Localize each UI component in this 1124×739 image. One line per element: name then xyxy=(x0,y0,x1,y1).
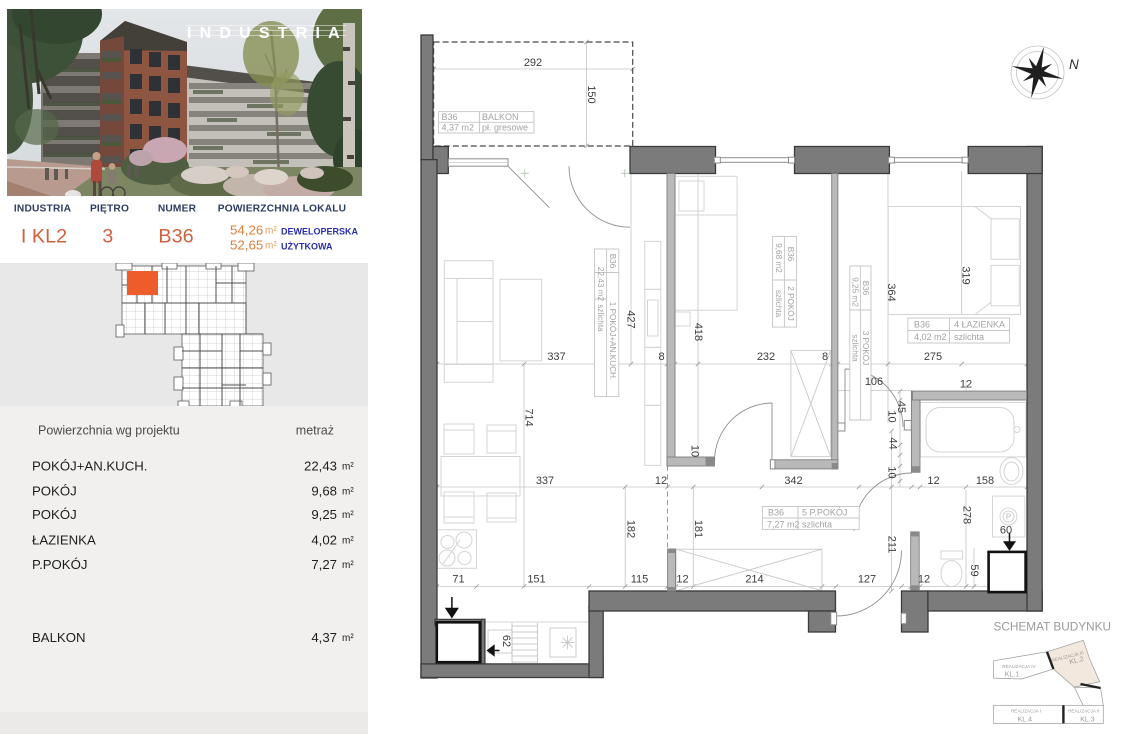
svg-text:4,02 m2: 4,02 m2 xyxy=(914,332,947,342)
svg-text:8: 8 xyxy=(658,351,664,363)
svg-text:12: 12 xyxy=(655,475,667,487)
svg-text:12: 12 xyxy=(918,574,930,586)
svg-text:115: 115 xyxy=(631,574,649,586)
svg-text:337: 337 xyxy=(536,475,554,487)
svg-text:7,27 m2: 7,27 m2 xyxy=(767,520,800,530)
svg-text:pł. gresowe: pł. gresowe xyxy=(482,123,528,133)
svg-text:B36: B36 xyxy=(768,508,784,518)
svg-text:211: 211 xyxy=(886,536,898,554)
svg-text:KL.3: KL.3 xyxy=(1080,717,1095,724)
svg-text:44: 44 xyxy=(887,437,899,449)
svg-text:62: 62 xyxy=(500,635,512,647)
svg-text:KL.4: KL.4 xyxy=(1018,717,1033,724)
svg-text:szlichta: szlichta xyxy=(774,290,783,318)
svg-text:182: 182 xyxy=(624,520,636,538)
svg-text:151: 151 xyxy=(527,574,545,586)
svg-text:12: 12 xyxy=(676,574,688,586)
svg-text:60: 60 xyxy=(1000,525,1012,537)
svg-text:SCHEMAT BUDYNKU: SCHEMAT BUDYNKU xyxy=(994,620,1112,634)
svg-text:12: 12 xyxy=(927,475,939,487)
svg-text:22,43 m2: 22,43 m2 xyxy=(596,267,605,302)
svg-text:B36: B36 xyxy=(608,254,617,269)
svg-text:364: 364 xyxy=(885,283,897,301)
svg-text:232: 232 xyxy=(757,351,775,363)
svg-text:342: 342 xyxy=(784,475,802,487)
svg-text:4,37 m2: 4,37 m2 xyxy=(442,123,475,133)
svg-text:158: 158 xyxy=(976,475,994,487)
svg-text:B36: B36 xyxy=(442,112,458,122)
svg-text:szlichta: szlichta xyxy=(851,334,860,362)
svg-text:127: 127 xyxy=(858,574,876,586)
svg-text:B36: B36 xyxy=(861,281,870,296)
svg-text:275: 275 xyxy=(924,351,942,363)
svg-text:292: 292 xyxy=(524,57,542,69)
svg-text:10: 10 xyxy=(886,466,898,478)
svg-text:4 ŁAZIENKA: 4 ŁAZIENKA xyxy=(954,320,1005,330)
svg-text:9,25 m2: 9,25 m2 xyxy=(851,277,860,307)
svg-text:10: 10 xyxy=(689,445,701,457)
svg-text:150: 150 xyxy=(585,85,597,103)
svg-text:5 P.POKÓJ: 5 P.POKÓJ xyxy=(802,508,847,518)
svg-text:REALIZACJA II: REALIZACJA II xyxy=(1068,709,1099,714)
svg-text:418: 418 xyxy=(692,323,704,341)
svg-text:szlichta: szlichta xyxy=(954,332,984,342)
svg-text:10: 10 xyxy=(886,410,898,422)
svg-text:3 POKÓJ: 3 POKÓJ xyxy=(861,331,871,366)
svg-text:szlichta: szlichta xyxy=(596,304,605,332)
svg-text:71: 71 xyxy=(452,574,464,586)
svg-text:N: N xyxy=(1069,57,1079,72)
svg-text:214: 214 xyxy=(745,574,763,586)
svg-text:12: 12 xyxy=(960,379,972,391)
svg-text:REALIZACJA I: REALIZACJA I xyxy=(1011,709,1041,714)
svg-text:REALIZACJA IV: REALIZACJA IV xyxy=(1002,664,1036,669)
svg-text:szlichta: szlichta xyxy=(802,520,832,530)
svg-text:319: 319 xyxy=(960,266,972,284)
svg-text:59: 59 xyxy=(968,564,980,576)
svg-text:278: 278 xyxy=(961,506,973,524)
svg-text:B36: B36 xyxy=(786,247,795,262)
svg-text:BALKON: BALKON xyxy=(482,112,519,122)
svg-text:8: 8 xyxy=(822,351,828,363)
svg-text:106: 106 xyxy=(865,376,883,388)
svg-text:714: 714 xyxy=(523,408,535,426)
svg-text:B36: B36 xyxy=(914,320,930,330)
svg-text:181: 181 xyxy=(692,520,704,538)
svg-text:2 POKÓJ: 2 POKÓJ xyxy=(786,286,796,321)
svg-text:1 POKÓJ+AN.KUCH.: 1 POKÓJ+AN.KUCH. xyxy=(608,302,618,381)
svg-text:P: P xyxy=(1006,513,1011,522)
svg-text:KL.1: KL.1 xyxy=(1005,672,1020,679)
svg-text:9,68 m2: 9,68 m2 xyxy=(774,243,783,273)
svg-text:427: 427 xyxy=(625,310,637,328)
svg-text:337: 337 xyxy=(547,351,565,363)
